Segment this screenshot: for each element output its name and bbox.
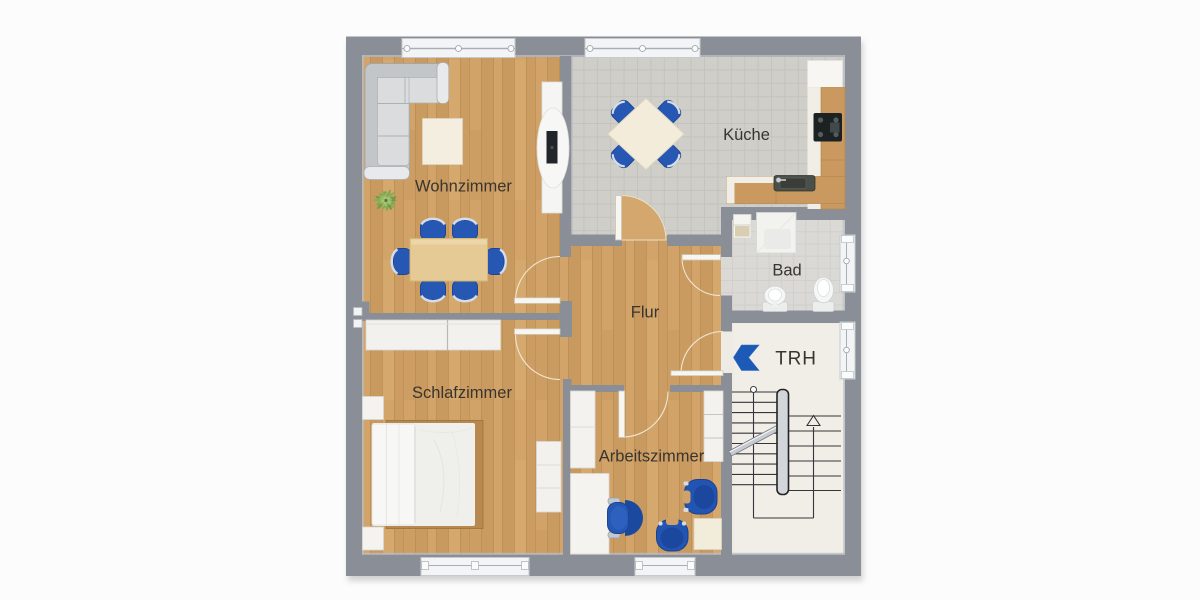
svg-text:Bad: Bad	[772, 262, 801, 280]
svg-text:Flur: Flur	[631, 304, 660, 322]
svg-text:Arbeitszimmer: Arbeitszimmer	[599, 448, 705, 466]
svg-text:Schlafzimmer: Schlafzimmer	[412, 384, 512, 402]
svg-text:Wohnzimmer: Wohnzimmer	[415, 178, 512, 196]
svg-text:TRH: TRH	[775, 349, 816, 370]
svg-text:Küche: Küche	[723, 126, 770, 144]
